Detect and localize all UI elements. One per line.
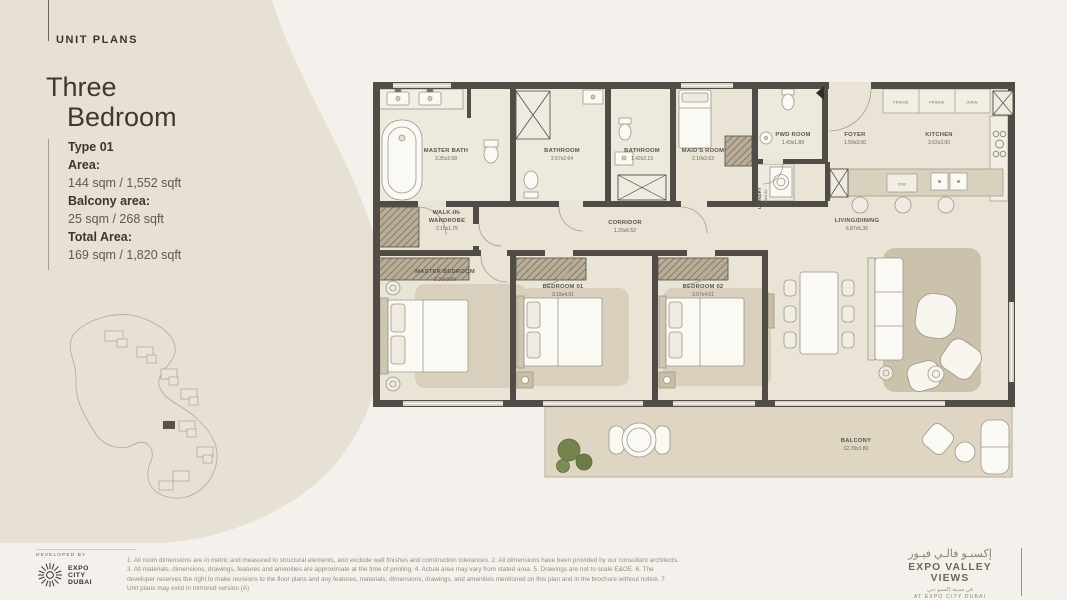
room-label-bathroom-b: BATHROOM [624, 148, 660, 154]
brand-name: EXPO VALLEY VIEWS [890, 562, 1010, 584]
legal-disclaimer: 1. All room dimensions are in metric and… [127, 556, 679, 593]
svg-text:6.87x5.36: 6.87x5.36 [846, 226, 868, 232]
svg-text:12.70x1.80: 12.70x1.80 [844, 446, 869, 452]
room-label-master-bath: MASTER BATH [424, 148, 469, 154]
header-rule [48, 0, 49, 41]
room-label-kitchen: KITCHEN [925, 132, 953, 138]
svg-text:3.35x2.68: 3.35x2.68 [435, 156, 457, 162]
svg-text:3.52x3.00: 3.52x3.00 [928, 140, 950, 146]
developer-name: EXPO CITY DUBAI [68, 565, 92, 586]
balcony-area-label: Balcony area: [68, 192, 181, 210]
developer-block: DEVELOPED BY EXPO CITY DUBAI [36, 553, 92, 589]
maids-bed [679, 90, 711, 148]
svg-text:2.15x1.75: 2.15x1.75 [436, 226, 458, 232]
svg-text:WARDROBE: WARDROBE [429, 218, 465, 224]
floor-plan: MASTER BATH 3.35x2.68 BATHROOM 2.57x2.64… [363, 74, 1023, 486]
balcony-area-value: 25 sqm / 268 sqft [68, 210, 181, 228]
svg-text:1.43x1.89: 1.43x1.89 [782, 140, 804, 146]
room-label-walkin: WALK-IN- [433, 210, 462, 216]
svg-text:3.15x4.01: 3.15x4.01 [552, 292, 574, 298]
svg-text:2.57x2.64: 2.57x2.64 [551, 156, 573, 162]
expo-city-logo-icon [36, 561, 64, 589]
fridge-label-2: FRIDGE [929, 101, 944, 105]
specs-rule [48, 139, 49, 270]
section-label: UNIT PLANS [56, 34, 138, 46]
room-label-balcony: BALCONY [841, 438, 871, 444]
room-label-laundry: LAUNDRY [757, 187, 762, 209]
room-label-bedroom01: BEDROOM 01 [543, 284, 584, 290]
kitchen-island [833, 169, 1003, 196]
svg-text:3.30x3.65: 3.30x3.65 [434, 277, 456, 283]
svg-text:2.10x2.63: 2.10x2.63 [692, 156, 714, 162]
oven-label: OVEN [966, 101, 977, 105]
total-area-value: 169 sqm / 1,820 sqft [68, 246, 181, 264]
brand-block: إكسبـو فالـي فيـوز EXPO VALLEY VIEWS في … [890, 547, 1010, 600]
area-label: Area: [68, 156, 181, 174]
highlighted-building [163, 421, 175, 429]
brand-sub-arabic: في مدينة إكسبو دبي [890, 587, 1010, 593]
svg-text:1.42x2.13: 1.42x2.13 [631, 156, 653, 162]
svg-text:1.50x3.00: 1.50x3.00 [844, 140, 866, 146]
room-label-maids-room: MAID'S ROOM [682, 148, 724, 154]
footer-rule [36, 549, 136, 550]
room-label-foyer: FOYER [844, 132, 866, 138]
location-key-plan [55, 295, 290, 525]
svg-text:1.20x6.52: 1.20x6.52 [614, 228, 636, 234]
room-label-living-dining: LIVING/DINING [835, 218, 880, 224]
brand-arabic: إكسبـو فالـي فيـوز [890, 547, 1010, 560]
total-area-label: Total Area: [68, 228, 181, 246]
svg-text:3.07x4.01: 3.07x4.01 [692, 292, 714, 298]
room-label-master-bedroom: MASTER BEDROOM [415, 269, 475, 275]
page-title-line1: Three [46, 72, 177, 102]
unit-specs: Type 01 Area: 144 sqm / 1,552 sqft Balco… [68, 138, 181, 264]
svg-text:1.00x0.80: 1.00x0.80 [763, 189, 768, 207]
room-label-corridor: CORRIDOR [608, 220, 642, 226]
fridge-label: FRIDGE [893, 101, 908, 105]
room-label-pwd: PWD ROOM [775, 132, 810, 138]
brochure-page: UNIT PLANS Three Bedroom Type 01 Area: 1… [0, 0, 1067, 600]
page-title-line2: Bedroom [67, 102, 177, 132]
brand-rule [1021, 548, 1022, 596]
unit-type: Type 01 [68, 138, 181, 156]
area-value: 144 sqm / 1,552 sqft [68, 174, 181, 192]
room-label-bathroom-a: BATHROOM [544, 148, 580, 154]
brand-subtitle: AT EXPO CITY DUBAI [890, 594, 1010, 600]
developed-by-label: DEVELOPED BY [36, 553, 92, 558]
page-title: Three Bedroom [46, 72, 177, 132]
room-label-bedroom02: BEDROOM 02 [683, 284, 724, 290]
dishwasher-label: D/W [898, 183, 906, 187]
